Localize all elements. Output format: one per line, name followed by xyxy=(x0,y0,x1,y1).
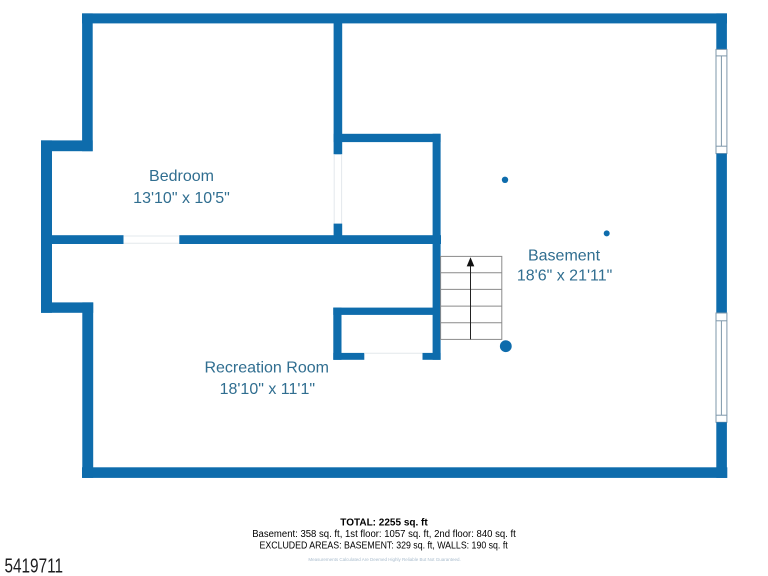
svg-text:18'10" x 11'1": 18'10" x 11'1" xyxy=(220,381,315,398)
svg-text:EXCLUDED AREAS: BASEMENT: 329: EXCLUDED AREAS: BASEMENT: 329 sq. ft, WA… xyxy=(260,540,508,551)
svg-text:TOTAL: 2255 sq. ft: TOTAL: 2255 sq. ft xyxy=(340,518,428,529)
svg-text:Bedroom: Bedroom xyxy=(149,168,214,185)
svg-text:5419711: 5419711 xyxy=(5,556,64,576)
svg-text:Measurements Calculated Are De: Measurements Calculated Are Deemed Highl… xyxy=(308,557,460,562)
svg-text:Basement: Basement xyxy=(528,247,601,264)
svg-text:13'10" x 10'5": 13'10" x 10'5" xyxy=(133,190,230,207)
svg-text:Recreation Room: Recreation Room xyxy=(204,360,329,377)
svg-text:Basement: 358 sq. ft, 1st floo: Basement: 358 sq. ft, 1st floor: 1057 sq… xyxy=(252,529,516,540)
svg-text:18'6" x 21'11": 18'6" x 21'11" xyxy=(517,268,612,285)
